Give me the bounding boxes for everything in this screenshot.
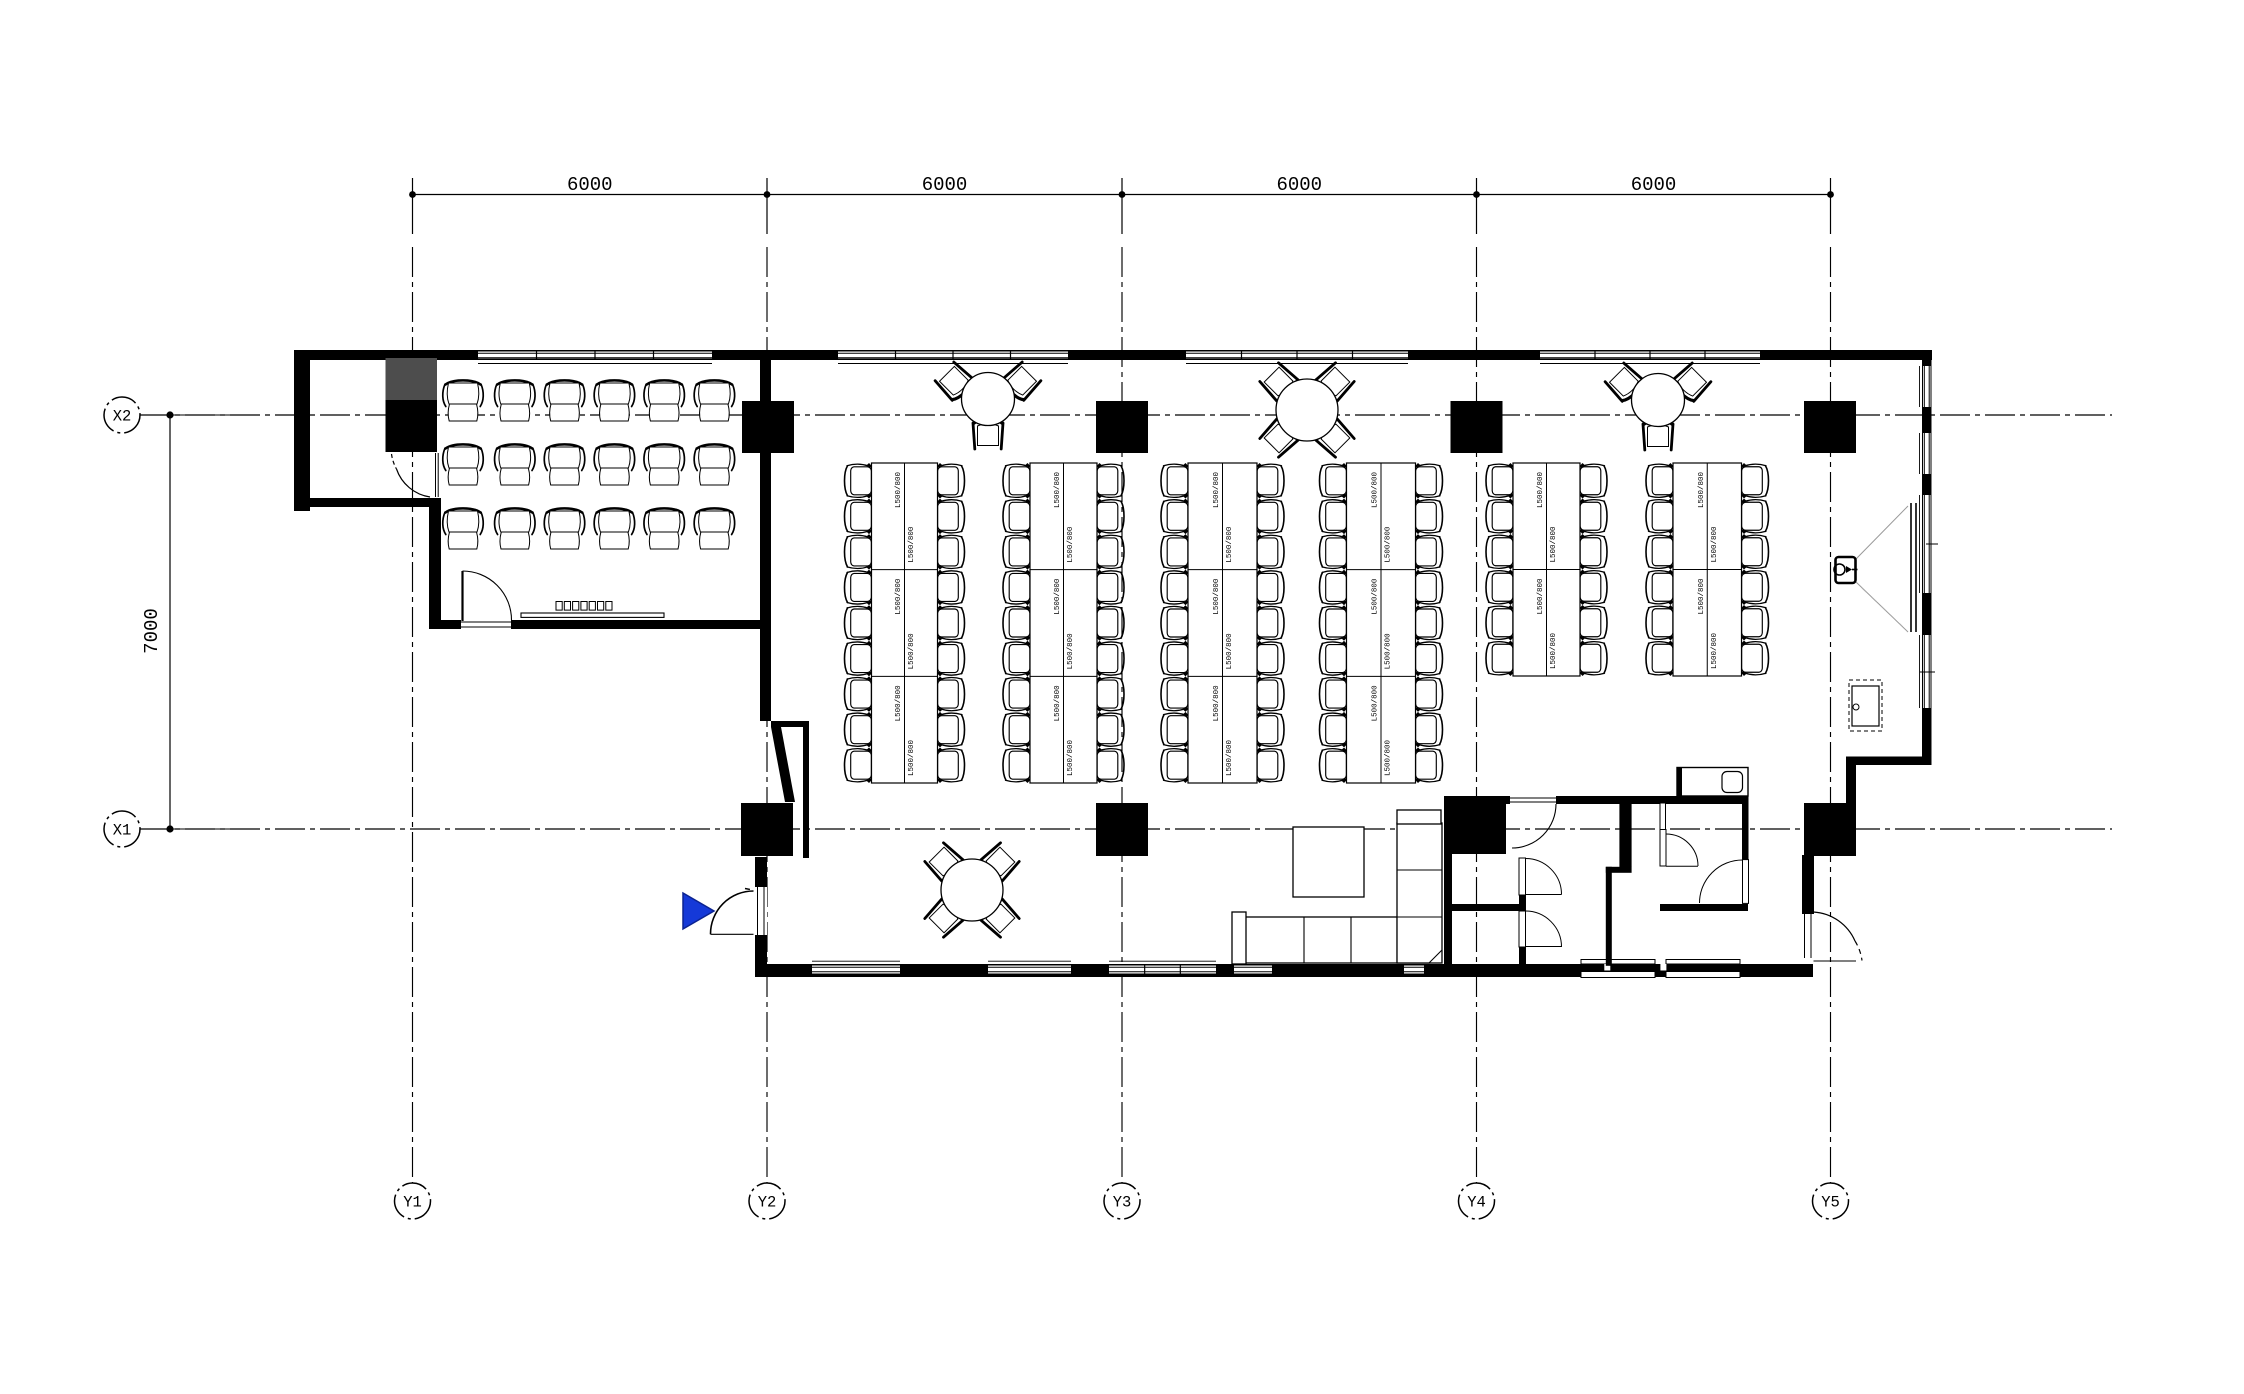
svg-text:L500/800: L500/800 bbox=[1226, 633, 1234, 670]
svg-text:6000: 6000 bbox=[567, 174, 613, 196]
svg-text:L500/800: L500/800 bbox=[1385, 740, 1393, 777]
svg-text:L500/800: L500/800 bbox=[1550, 633, 1558, 670]
svg-text:L500/800: L500/800 bbox=[1537, 578, 1545, 615]
svg-text:L500/800: L500/800 bbox=[1213, 472, 1221, 509]
svg-text:L500/800: L500/800 bbox=[1054, 685, 1062, 722]
svg-text:6000: 6000 bbox=[1276, 174, 1322, 196]
svg-text:L500/800: L500/800 bbox=[1213, 685, 1221, 722]
svg-text:Y4: Y4 bbox=[1467, 1194, 1486, 1212]
svg-text:L500/800: L500/800 bbox=[1372, 578, 1380, 615]
svg-text:L500/800: L500/800 bbox=[1372, 472, 1380, 509]
svg-text:L500/800: L500/800 bbox=[1385, 526, 1393, 563]
svg-text:L500/800: L500/800 bbox=[1371, 685, 1379, 722]
svg-text:L500/800: L500/800 bbox=[1054, 578, 1062, 615]
svg-text:6000: 6000 bbox=[1631, 174, 1677, 196]
svg-text:L500/800: L500/800 bbox=[1550, 526, 1558, 563]
svg-text:L500/800: L500/800 bbox=[1698, 472, 1706, 509]
svg-text:Y2: Y2 bbox=[758, 1194, 777, 1212]
svg-text:L500/800: L500/800 bbox=[895, 472, 903, 509]
svg-text:L500/800: L500/800 bbox=[908, 633, 916, 670]
svg-text:7000: 7000 bbox=[141, 608, 163, 654]
svg-text:L500/800: L500/800 bbox=[895, 685, 903, 722]
svg-text:Y5: Y5 bbox=[1821, 1194, 1840, 1212]
svg-text:L500/800: L500/800 bbox=[908, 526, 916, 563]
svg-text:L500/800: L500/800 bbox=[1054, 472, 1062, 509]
svg-text:L500/800: L500/800 bbox=[908, 740, 916, 777]
svg-text:L500/800: L500/800 bbox=[1213, 578, 1221, 615]
svg-text:L500/800: L500/800 bbox=[1226, 526, 1234, 563]
svg-text:Y3: Y3 bbox=[1113, 1194, 1132, 1212]
svg-text:L500/800: L500/800 bbox=[1698, 578, 1706, 615]
svg-text:L500/800: L500/800 bbox=[895, 578, 903, 615]
svg-text:X2: X2 bbox=[113, 408, 132, 426]
svg-text:6000: 6000 bbox=[922, 174, 968, 196]
svg-text:L500/800: L500/800 bbox=[1711, 633, 1719, 670]
svg-text:L500/800: L500/800 bbox=[1711, 526, 1719, 563]
svg-text:L500/800: L500/800 bbox=[1537, 472, 1545, 509]
svg-text:L500/800: L500/800 bbox=[1226, 740, 1234, 777]
svg-text:L500/800: L500/800 bbox=[1067, 633, 1075, 670]
svg-text:L500/800: L500/800 bbox=[1067, 526, 1075, 563]
svg-text:Y1: Y1 bbox=[403, 1194, 422, 1212]
svg-text:L500/800: L500/800 bbox=[1067, 740, 1075, 777]
svg-text:L500/800: L500/800 bbox=[1384, 633, 1392, 670]
svg-text:X1: X1 bbox=[113, 822, 132, 840]
